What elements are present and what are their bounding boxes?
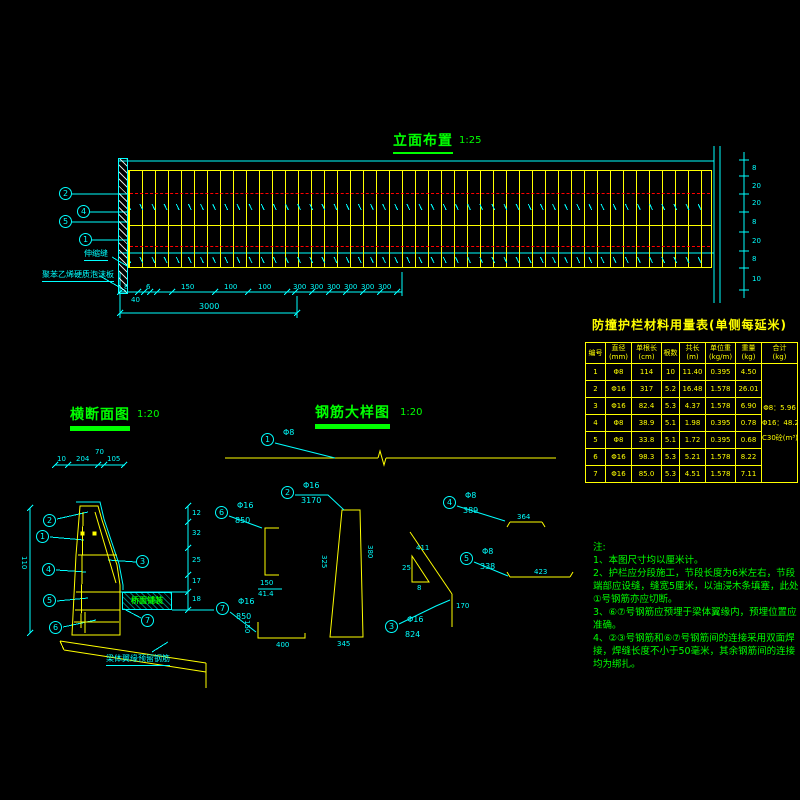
rebar-dia-2: Φ16: [303, 482, 319, 490]
table-totals-cell: Φ8：5.96Φ16：48.24C30砼(m³)：0.43: [762, 364, 798, 483]
rebar-dia-7: Φ16: [238, 598, 254, 606]
cs-callout-6: 6: [49, 621, 62, 634]
rebar-callout-1: 1: [261, 433, 274, 446]
cad-drawing-sheet: 立面布置 1:25 2 4 5 1 伸缩缝 聚苯乙烯硬质泡沫板 8 40 6 1…: [0, 0, 800, 800]
elevation-callout-1: 1: [79, 233, 92, 246]
rebar-dim-tri-v: 25: [402, 565, 411, 572]
cross-section-title: 横断面图: [70, 404, 130, 428]
rebar-dim-i3v: 170: [456, 603, 469, 610]
rebar-dia-4: Φ8: [465, 492, 476, 500]
rebar-len-5: 338: [480, 563, 495, 571]
col-diameter: 直径(mm): [606, 343, 632, 364]
notes-heading: 注:: [593, 541, 799, 554]
col-unit-length: 单根长(cm): [632, 343, 662, 364]
cs-right-dim-4: 18: [192, 596, 201, 603]
rebar-dim-tri-h: 8: [417, 585, 421, 592]
elevation-dash-bar-1: [130, 193, 710, 194]
notes-block: 注: 1、本图尺寸均以厘米计。 2、护栏应分段施工，节段长度为6米左右，节段端部…: [593, 541, 799, 671]
col-unit-weight: 单位重(kg/m): [706, 343, 736, 364]
flange-rebar-label: 梁体翼缘预留钢筋: [106, 653, 170, 666]
cs-left-dim: 110: [20, 556, 27, 569]
elev-right-dim-3: 8: [752, 219, 756, 226]
rebar-detail-title: 钢筋大样图: [315, 402, 390, 426]
dim-8: 8: [124, 284, 128, 291]
expansion-joint-hatch: [118, 158, 128, 294]
material-table-title: 防撞护栏材料用量表(单侧每延米): [592, 316, 787, 333]
elev-right-dim-6: 10: [752, 276, 761, 283]
rebar-detail-scale: 1:20: [400, 407, 422, 418]
rebar-dim-i5-bar: 423: [534, 569, 547, 576]
rebar-len-6: 850: [235, 517, 250, 525]
note-line-4: 4、②③号钢筋和⑥⑦号钢筋间的连接采用双面焊接，焊缝长度不小于50毫米，其余钢筋…: [593, 632, 799, 671]
col-sum: 合计(kg): [762, 343, 798, 364]
rebar-len-4: 389: [463, 507, 478, 515]
rebar-shapes: [225, 451, 573, 638]
dim-300e: 300: [361, 284, 374, 291]
elevation-tick-row-1: [130, 204, 710, 210]
elevation-title: 立面布置: [393, 130, 453, 154]
elevation-callout-5: 5: [59, 215, 72, 228]
dim-6: 6: [146, 284, 150, 291]
rebar-callout-2: 2: [281, 486, 294, 499]
rebar-dim-i7v: 150: [243, 620, 250, 633]
elevation-callout-2: 2: [59, 187, 72, 200]
cs-right-dim-2: 25: [192, 557, 201, 564]
rebar-dim-i2-right: 380: [366, 545, 373, 558]
dim-300d: 300: [344, 284, 357, 291]
col-count: 根数: [662, 343, 680, 364]
expansion-joint-label: 伸缩缝: [84, 248, 108, 261]
elev-right-dim-5: 8: [752, 256, 756, 263]
elevation-mid-bar: [128, 225, 712, 226]
rebar-dia-6: Φ16: [237, 502, 253, 510]
elevation-scale: 1:25: [459, 135, 481, 146]
dim-300b: 300: [310, 284, 323, 291]
rebar-len-3: 824: [405, 631, 420, 639]
cs-top-dim-0: 10: [57, 456, 66, 463]
dim-100a: 100: [224, 284, 237, 291]
dim-300f: 300: [378, 284, 391, 291]
elev-right-dim-2: 20: [752, 200, 761, 207]
note-line-1: 1、本图尺寸均以厘米计。: [593, 554, 799, 567]
dim-150: 150: [181, 284, 194, 291]
rebar-dia-5: Φ8: [482, 548, 493, 556]
cs-callout-3: 3: [136, 555, 149, 568]
note-line-3: 3、⑥⑦号钢筋应预埋于梁体翼缘内，预埋位置应准确。: [593, 606, 799, 632]
rebar-dim-i3-diag: 411: [416, 545, 429, 552]
table-header-row: 编号 直径(mm) 单根长(cm) 根数 共长(m) 单位重(kg/m) 重量(…: [586, 343, 798, 364]
cs-callout-1: 1: [36, 530, 49, 543]
rebar-callout-7: 7: [216, 602, 229, 615]
dim-300a: 300: [293, 284, 306, 291]
cs-top-dim-2: 70: [95, 449, 104, 456]
cs-top-dim-1: 204: [76, 456, 89, 463]
cs-callout-2: 2: [43, 514, 56, 527]
elevation-dash-bar-2: [130, 246, 710, 247]
cs-right-dim-3: 17: [192, 578, 201, 585]
deck-pavement-hatch: 桥面铺装: [122, 592, 172, 610]
elevation-rebar-grid: [128, 170, 712, 268]
note-line-2: 2、护栏应分段施工，节段长度为6米左右，节段端部应设缝，缝宽5厘米，以油浸木条填…: [593, 567, 799, 606]
cs-top-dim-3: 105: [107, 456, 120, 463]
table-row: 1Φ81141011.400.3954.50 Φ8：5.96Φ16：48.24C…: [586, 364, 798, 381]
rebar-callout-5: 5: [460, 552, 473, 565]
elev-right-dim-0: 8: [752, 165, 756, 172]
rebar-dia-1: Φ8: [283, 429, 294, 437]
rebar-dim-i7h: 400: [276, 642, 289, 649]
rebar-callout-3: 3: [385, 620, 398, 633]
rebar-len-2: 3170: [301, 497, 321, 505]
col-total-length: 共长(m): [680, 343, 706, 364]
dim-40: 40: [131, 297, 140, 304]
rebar-callout-4: 4: [443, 496, 456, 509]
dim-total-3000: 3000: [199, 303, 219, 311]
material-table: 编号 直径(mm) 单根长(cm) 根数 共长(m) 单位重(kg/m) 重量(…: [585, 342, 798, 483]
elev-right-dim-4: 20: [752, 238, 761, 245]
dim-100b: 100: [258, 284, 271, 291]
foam-board-label: 聚苯乙烯硬质泡沫板: [42, 269, 114, 282]
rebar-dim-i2-left: 325: [320, 555, 327, 568]
rebar-dim-i4-bar: 364: [517, 514, 530, 521]
cs-right-dim-1: 32: [192, 530, 201, 537]
rebar-dim-i2-bottom: 345: [337, 641, 350, 648]
elevation-callout-4: 4: [77, 205, 90, 218]
dim-300c: 300: [327, 284, 340, 291]
cs-right-dim-0: 12: [192, 510, 201, 517]
elev-right-dim-1: 20: [752, 183, 761, 190]
rebar-dim-i6b: 41.4: [258, 591, 274, 598]
elevation-tick-row-2: [130, 257, 710, 263]
col-weight: 重量(kg): [736, 343, 762, 364]
cs-callout-5: 5: [43, 594, 56, 607]
cs-callout-7: 7: [141, 614, 154, 627]
cs-callout-4: 4: [42, 563, 55, 576]
rebar-dim-i6a: 150: [260, 580, 273, 587]
col-no: 编号: [586, 343, 606, 364]
rebar-dia-3: Φ16: [407, 616, 423, 624]
cross-section-scale: 1:20: [137, 409, 159, 420]
rebar-callout-6: 6: [215, 506, 228, 519]
